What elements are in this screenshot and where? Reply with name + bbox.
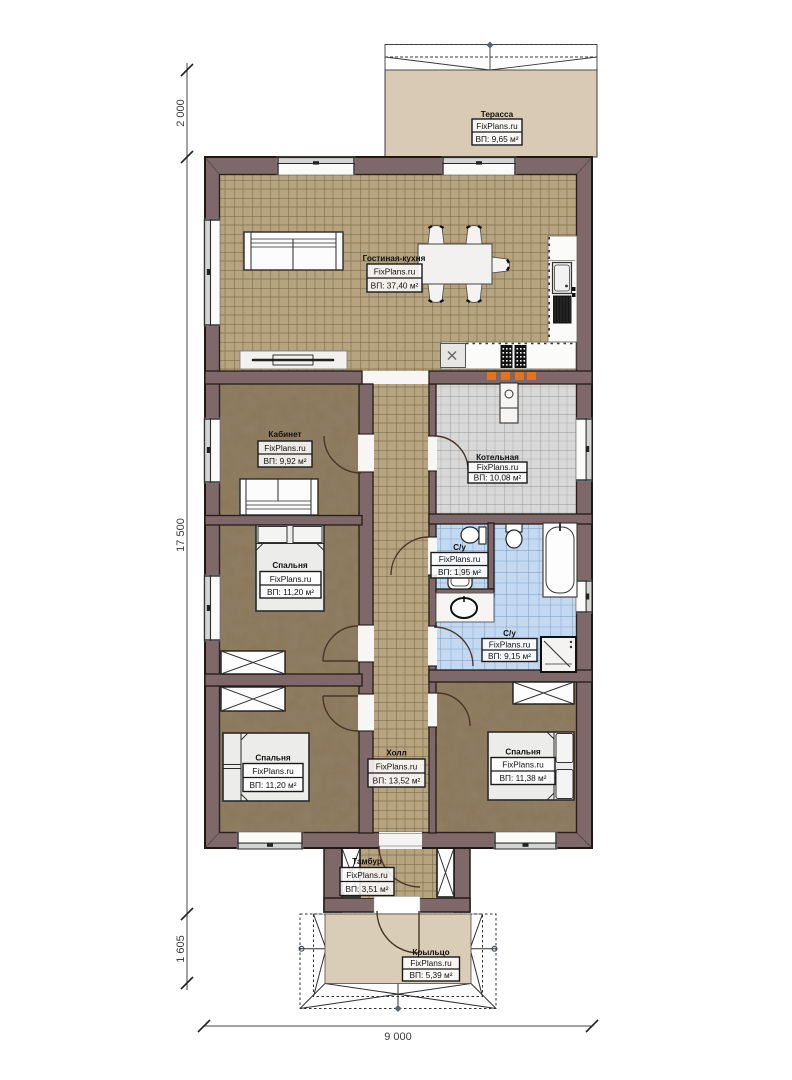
svg-text:FixPlans.ru: FixPlans.ru [264,443,306,453]
svg-text:С/у: С/у [503,629,516,638]
svg-text:FixPlans.ru: FixPlans.ru [502,760,544,770]
svg-text:2 000: 2 000 [175,99,187,127]
svg-text:Котельная: Котельная [476,453,519,462]
svg-text:Холл: Холл [386,749,407,758]
svg-text:FixPlans.ru: FixPlans.ru [489,640,531,650]
svg-text:ВП: 11,20 м²: ВП: 11,20 м² [249,780,296,790]
svg-text:FixPlans.ru: FixPlans.ru [477,462,519,472]
svg-text:Терасса: Терасса [481,110,514,119]
svg-text:FixPlans.ru: FixPlans.ru [346,870,388,880]
svg-text:Кабинет: Кабинет [268,429,301,439]
svg-text:Спальня: Спальня [255,754,291,763]
svg-text:ВП: 11,20 м²: ВП: 11,20 м² [267,587,314,597]
svg-text:ВП: 10,08 м²: ВП: 10,08 м² [474,473,522,483]
svg-text:ВП: 13,52 м²: ВП: 13,52 м² [373,776,421,786]
svg-text:FixPlans.ru: FixPlans.ru [376,762,418,772]
svg-text:ВП: 11,38 м²: ВП: 11,38 м² [499,773,546,783]
svg-text:ВП: 3,51 м²: ВП: 3,51 м² [345,884,388,894]
svg-text:С/у: С/у [453,543,466,552]
svg-text:ВП: 9,65 м²: ВП: 9,65 м² [475,134,518,144]
svg-text:ВП: 9,92 м²: ВП: 9,92 м² [263,456,306,466]
svg-text:FixPlans.ru: FixPlans.ru [374,267,416,277]
svg-text:FixPlans.ru: FixPlans.ru [476,121,518,131]
svg-text:17 500: 17 500 [175,518,187,552]
svg-text:9 000: 9 000 [384,1031,412,1043]
svg-text:Спальня: Спальня [505,748,541,757]
svg-text:FixPlans.ru: FixPlans.ru [439,554,481,564]
svg-text:Спальня: Спальня [272,561,308,570]
svg-text:FixPlans.ru: FixPlans.ru [252,766,294,776]
svg-text:1 605: 1 605 [175,935,187,963]
svg-text:ВП: 37,40 м²: ВП: 37,40 м² [371,281,419,291]
svg-text:Тамбур: Тамбур [352,856,382,866]
svg-text:FixPlans.ru: FixPlans.ru [410,958,452,968]
svg-text:Крыльцо: Крыльцо [412,948,449,957]
svg-text:ВП: 1,95 м²: ВП: 1,95 м² [438,567,481,577]
svg-text:ВП: 9,15 м²: ВП: 9,15 м² [488,651,531,661]
svg-text:FixPlans.ru: FixPlans.ru [270,574,312,584]
svg-text:ВП: 5,39 м²: ВП: 5,39 м² [409,970,452,980]
svg-text:Гостиная-кухня: Гостиная-кухня [363,254,426,263]
